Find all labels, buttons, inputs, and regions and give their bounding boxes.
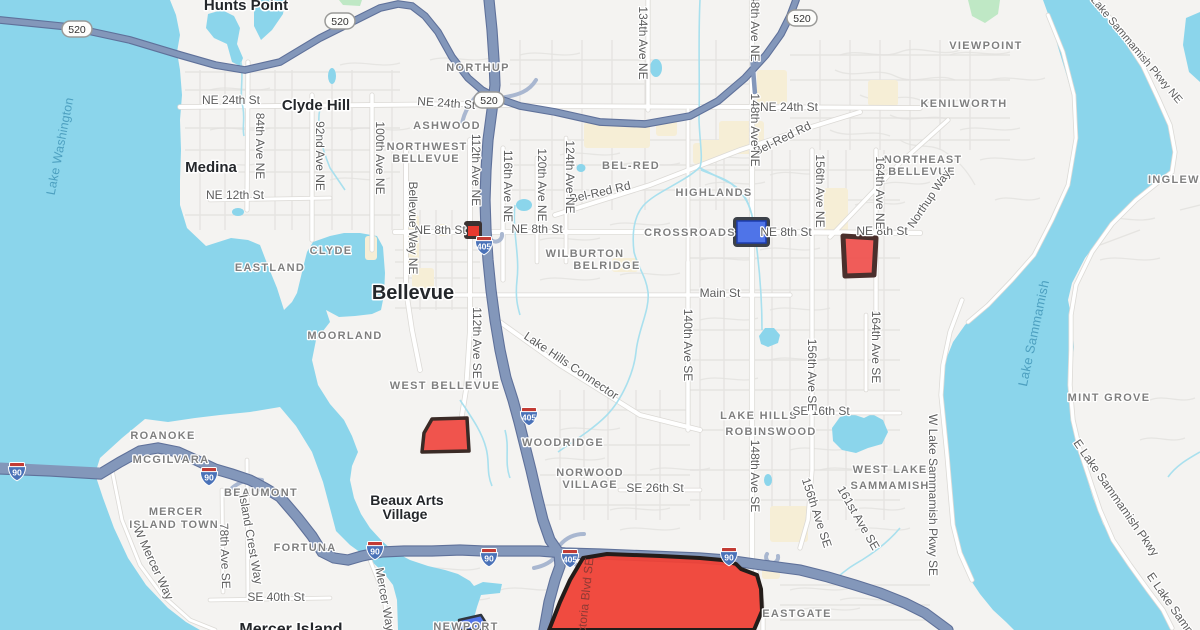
svg-text:ROBINSWOOD: ROBINSWOOD xyxy=(725,426,816,438)
svg-text:Clyde Hill: Clyde Hill xyxy=(282,97,350,114)
svg-text:520: 520 xyxy=(68,24,86,36)
svg-text:BELLEVUE: BELLEVUE xyxy=(392,153,459,165)
svg-text:ASHWOOD: ASHWOOD xyxy=(413,120,481,132)
svg-text:164th Ave SE: 164th Ave SE xyxy=(869,311,883,384)
svg-text:MOORLAND: MOORLAND xyxy=(307,330,382,342)
svg-text:WEST LAKE: WEST LAKE xyxy=(853,464,928,476)
svg-text:100th Ave NE: 100th Ave NE xyxy=(373,121,387,194)
svg-text:NORTHWEST: NORTHWEST xyxy=(387,141,468,153)
svg-text:78th Ave SE: 78th Ave SE xyxy=(217,523,233,589)
svg-text:VIEWPOINT: VIEWPOINT xyxy=(949,40,1022,52)
svg-text:Bellevue: Bellevue xyxy=(372,282,454,304)
svg-text:405: 405 xyxy=(477,242,492,252)
svg-text:EASTGATE: EASTGATE xyxy=(762,608,831,620)
svg-text:156th Ave NE: 156th Ave NE xyxy=(813,154,827,227)
svg-text:KENILWORTH: KENILWORTH xyxy=(921,98,1008,110)
svg-text:NORTHEAST: NORTHEAST xyxy=(884,154,962,166)
svg-text:BEL-RED: BEL-RED xyxy=(602,160,660,172)
svg-text:WILBURTON: WILBURTON xyxy=(546,248,625,260)
svg-text:NE 8th St: NE 8th St xyxy=(511,222,563,236)
svg-text:LAKE HILLS: LAKE HILLS xyxy=(720,410,798,422)
svg-text:WOODRIDGE: WOODRIDGE xyxy=(522,437,604,449)
svg-text:90: 90 xyxy=(484,554,494,564)
svg-text:SE 40th St: SE 40th St xyxy=(247,590,305,604)
svg-text:Bellevue Way NE: Bellevue Way NE xyxy=(406,182,420,275)
svg-text:VILLAGE: VILLAGE xyxy=(562,479,617,491)
svg-text:NE 12th St: NE 12th St xyxy=(206,188,265,202)
svg-text:MCGILVARA: MCGILVARA xyxy=(133,454,210,466)
svg-text:405: 405 xyxy=(522,413,537,423)
svg-text:112th Ave SE: 112th Ave SE xyxy=(470,307,484,379)
svg-text:Medina: Medina xyxy=(185,159,237,176)
svg-text:148th Ave SE: 148th Ave SE xyxy=(748,440,762,513)
svg-text:SE 16th St: SE 16th St xyxy=(792,404,850,418)
svg-text:90: 90 xyxy=(370,547,380,557)
svg-text:NORTHUP: NORTHUP xyxy=(446,62,510,74)
svg-text:405: 405 xyxy=(563,555,578,565)
svg-text:NEWPORT: NEWPORT xyxy=(433,621,498,630)
svg-text:148th Ave NE: 148th Ave NE xyxy=(748,0,762,62)
svg-text:FORTUNA: FORTUNA xyxy=(274,542,337,554)
svg-text:NE 24th St: NE 24th St xyxy=(760,100,819,114)
svg-text:112th Ave NE: 112th Ave NE xyxy=(469,134,483,206)
svg-text:WEST BELLEVUE: WEST BELLEVUE xyxy=(390,380,500,392)
svg-text:NE 8th St: NE 8th St xyxy=(760,225,812,239)
svg-text:BELRIDGE: BELRIDGE xyxy=(573,260,640,272)
svg-text:116th Ave NE: 116th Ave NE xyxy=(501,150,515,222)
svg-text:MERCER: MERCER xyxy=(149,506,203,518)
svg-text:120th Ave NE: 120th Ave NE xyxy=(535,148,549,221)
svg-text:HIGHLANDS: HIGHLANDS xyxy=(675,187,752,199)
svg-text:ROANOKE: ROANOKE xyxy=(130,430,195,442)
svg-text:SAMMAMISH: SAMMAMISH xyxy=(851,480,930,492)
svg-text:92nd Ave NE: 92nd Ave NE xyxy=(313,121,327,191)
svg-text:CLYDE: CLYDE xyxy=(310,245,353,257)
svg-text:EASTLAND: EASTLAND xyxy=(235,262,305,274)
svg-text:140th Ave SE: 140th Ave SE xyxy=(681,309,695,382)
svg-text:SE 26th St: SE 26th St xyxy=(626,481,684,495)
svg-text:Mercer Island: Mercer Island xyxy=(239,621,342,630)
svg-text:Village: Village xyxy=(383,506,428,522)
svg-text:90: 90 xyxy=(724,553,734,563)
svg-text:Main St: Main St xyxy=(700,286,741,300)
svg-text:CROSSROADS: CROSSROADS xyxy=(644,227,736,239)
svg-text:W Lake Sammamish Pkwy SE: W Lake Sammamish Pkwy SE xyxy=(926,414,940,576)
svg-text:Hunts Point: Hunts Point xyxy=(204,0,288,14)
svg-text:156th Ave SE: 156th Ave SE xyxy=(805,339,819,412)
svg-text:520: 520 xyxy=(331,16,349,28)
svg-text:520: 520 xyxy=(793,13,811,25)
svg-text:164th Ave NE: 164th Ave NE xyxy=(873,156,887,229)
svg-text:124th Ave NE: 124th Ave NE xyxy=(563,140,577,213)
svg-text:90: 90 xyxy=(12,468,22,478)
svg-text:148th Ave NE: 148th Ave NE xyxy=(748,93,762,166)
svg-text:BEAUMONT: BEAUMONT xyxy=(224,487,298,499)
svg-text:NE 24th St: NE 24th St xyxy=(202,93,261,107)
svg-text:90: 90 xyxy=(204,473,214,483)
svg-text:NORWOOD: NORWOOD xyxy=(556,467,623,479)
svg-text:NE 8th St: NE 8th St xyxy=(414,223,466,237)
svg-text:INGLEWOOD: INGLEWOOD xyxy=(1148,174,1200,186)
svg-text:134th Ave NE: 134th Ave NE xyxy=(636,6,650,79)
svg-text:84th Ave NE: 84th Ave NE xyxy=(253,113,267,180)
svg-text:MINT GROVE: MINT GROVE xyxy=(1068,392,1151,404)
svg-text:520: 520 xyxy=(480,95,498,107)
